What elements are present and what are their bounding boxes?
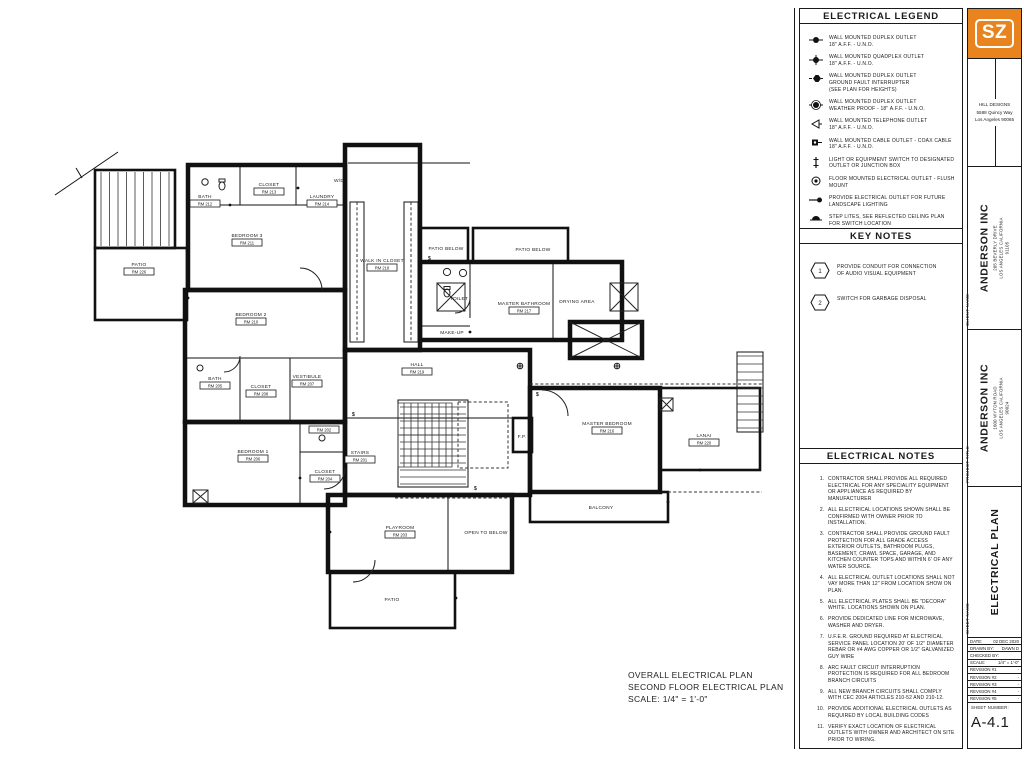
svg-text:BATH: BATH [317, 420, 331, 426]
notes-panel: ELECTRICAL LEGEND WALL MOUNTED DUPLEX OU… [799, 8, 963, 749]
sheet-name-label: SHEET NAME [965, 603, 970, 634]
room-label: LANAI RM 220 [689, 433, 719, 446]
room-label: PATIO [385, 597, 400, 603]
svg-text:RM 207: RM 207 [300, 381, 315, 386]
room-label: PATIO RM 226 [124, 262, 154, 275]
room-label: TOILET [450, 296, 468, 302]
client-cell: ANDERSON INC 205 BEVERLY DRIVE LOS ANGEL… [968, 167, 1021, 330]
legend-item: WALL MOUNTED TELEPHONE OUTLET18" A.F.F. … [803, 118, 959, 131]
svg-text:OPEN TO BELOW: OPEN TO BELOW [464, 530, 508, 536]
electrical-legend-section: ELECTRICAL LEGEND WALL MOUNTED DUPLEX OU… [800, 9, 962, 229]
room-label: HALL RM 219 [402, 362, 432, 375]
svg-text:BATH: BATH [198, 194, 212, 200]
sz-logo: SZ [975, 19, 1014, 48]
plan-caption: OVERALL ELECTRICAL PLAN SECOND FLOOR ELE… [628, 670, 783, 706]
svg-text:RM 218: RM 218 [375, 265, 390, 270]
room-label: CLOSET RM 208 [246, 384, 276, 397]
electrical-notes-title: ELECTRICAL NOTES [800, 449, 962, 464]
svg-text:CLOSET: CLOSET [259, 182, 280, 188]
svg-text:RM 226: RM 226 [132, 269, 147, 274]
note-item: 6.PROVIDE DEDICATED LINE FOR MICROWAVE, … [810, 616, 960, 629]
room-label: BALCONY [589, 505, 614, 511]
svg-text:BATH: BATH [208, 376, 222, 382]
legend-item: WALL MOUNTED DUPLEX OUTLET18" A.F.F. - U… [803, 35, 959, 48]
sheet-name-cell: ELECTRICAL PLAN SHEET NAME [968, 487, 1021, 638]
svg-text:W/D: W/D [334, 178, 344, 184]
sheet-number-label: SHEET NUMBER: [971, 705, 1018, 710]
stair-treads [101, 172, 763, 484]
room-label: MAKE-UP [440, 330, 464, 336]
designer-name: HILL DESIGNS [975, 101, 1014, 108]
note-item: 7.U.F.E.R. GROUND REQUIRED AT ELECTRICAL… [810, 634, 960, 660]
designer-address-1: 5588 Quincy Way [975, 109, 1014, 116]
switch-symbol: $ [352, 412, 355, 418]
plumbing-fixtures [197, 179, 620, 441]
room-label: BEDROOM 2 RM 210 [235, 312, 266, 325]
room-label: PATIO BELOW [428, 246, 463, 252]
room-label: VESTIBULE RM 207 [292, 374, 322, 387]
room-label: BATH RM 212 [190, 194, 220, 207]
svg-text:STAIRS: STAIRS [351, 450, 369, 456]
svg-text:PATIO BELOW: PATIO BELOW [428, 246, 463, 252]
room-label: PLAYROOM RM 203 [385, 525, 415, 538]
svg-text:MASTER BATHROOM: MASTER BATHROOM [498, 301, 550, 307]
svg-text:HALL: HALL [411, 362, 424, 368]
room-label: F.P. [518, 434, 527, 440]
gfi-outlet-icon [803, 73, 829, 93]
project-name: ANDERSON INC [978, 364, 990, 452]
svg-text:MAKE-UP: MAKE-UP [440, 330, 464, 336]
note-item: 11.VERIFY EXACT LOCATION OF ELECTRICAL O… [810, 724, 960, 744]
sheet-name: ELECTRICAL PLAN [989, 509, 1001, 616]
walls-interior [185, 163, 763, 572]
designer-address-2: Los Angeles 90065 [975, 116, 1014, 123]
legend-item: WALL MOUNTED DUPLEX OUTLETGROUND FAULT I… [803, 73, 959, 93]
svg-text:TOILET: TOILET [450, 296, 468, 302]
room-label: W/D [334, 178, 344, 184]
legend-item: WALL MOUNTED CABLE OUTLET - COAX CABLE18… [803, 138, 959, 151]
room-label: BEDROOM 3 RM 211 [231, 233, 262, 246]
svg-text:F.P.: F.P. [518, 434, 527, 440]
room-label: DRYING AREA [559, 299, 595, 305]
room-label: BATH RM 205 [200, 376, 230, 389]
note-item: 2.ALL ELECTRICAL LOCATIONS SHOWN SHALL B… [810, 507, 960, 527]
sheet-border-line [794, 8, 795, 749]
svg-text:CLOSET: CLOSET [251, 384, 272, 390]
svg-text:PATIO: PATIO [132, 262, 147, 268]
svg-text:RM 202: RM 202 [317, 427, 332, 432]
keynote-hexagon-icon: 1 [803, 262, 837, 279]
switch-symbol: $ [536, 392, 539, 398]
note-item: 5.ALL ELECTRICAL PLATES SHALL BE "DECORA… [810, 599, 960, 612]
svg-text:RM 201: RM 201 [353, 457, 368, 462]
client-name: ANDERSON INC [978, 204, 990, 292]
drawing-sheet: $ $ $ $ PATIO RM 226 BEDROOM 3 RM 211 BA… [0, 0, 1024, 758]
room-label: STAIRS RM 201 [345, 450, 375, 463]
room-label: MASTER BEDROOM RM 216 [582, 421, 632, 434]
room-label: CLOSET RM 213 [254, 182, 284, 195]
info-rows: DATE:02 DEC 2020 DRAWN BY:DAWN D CHECKED… [968, 638, 1021, 703]
info-row: CHECKED BY: [968, 652, 1021, 659]
caption-line-2: SECOND FLOOR ELECTRICAL PLAN [628, 682, 783, 694]
svg-text:PATIO BELOW: PATIO BELOW [515, 247, 550, 253]
project-title-label: PROJECT TITLE [965, 446, 970, 483]
svg-text:RM 203: RM 203 [393, 532, 408, 537]
svg-text:RM 214: RM 214 [315, 201, 330, 206]
room-label: OPEN TO BELOW [464, 530, 508, 536]
svg-text:RM 217: RM 217 [517, 308, 532, 313]
electrical-notes-section: ELECTRICAL NOTES 1.CONTRACTOR SHALL PROV… [800, 449, 962, 748]
svg-text:RM 213: RM 213 [262, 189, 277, 194]
legend-item: LIGHT OR EQUIPMENT SWITCH TO DESIGNATEDO… [803, 157, 959, 170]
info-row: REVISION #3- [968, 681, 1021, 688]
svg-text:RM 208: RM 208 [254, 391, 269, 396]
note-item: 1.CONTRACTOR SHALL PROVIDE ALL REQUIRED … [810, 476, 960, 502]
svg-text:DRYING AREA: DRYING AREA [559, 299, 595, 305]
key-note-item: 2 SWITCH FOR GARBAGE DISPOSAL [803, 294, 959, 311]
svg-text:BEDROOM 1: BEDROOM 1 [237, 449, 268, 455]
svg-text:RM 211: RM 211 [240, 240, 255, 245]
legend-item: STEP LITES, SEE REFLECTED CEILING PLANFO… [803, 214, 959, 227]
svg-text:BEDROOM 3: BEDROOM 3 [231, 233, 262, 239]
keynote-hexagon-icon: 2 [803, 294, 837, 311]
svg-text:RM 204: RM 204 [318, 476, 333, 481]
room-label: WALK IN CLOSET RM 218 [360, 258, 404, 271]
key-notes-section: KEY NOTES 1 PROVIDE CONDUIT FOR CONNECTI… [800, 229, 962, 449]
svg-text:RM 206: RM 206 [246, 456, 261, 461]
svg-text:PATIO: PATIO [385, 597, 400, 603]
info-row: DRAWN BY:DAWN D [968, 645, 1021, 652]
info-row: SCALE:1/4" = 1'-0" [968, 660, 1021, 667]
switch-symbol: $ [428, 256, 431, 262]
key-note-item: 1 PROVIDE CONDUIT FOR CONNECTION OF AUDI… [803, 262, 959, 279]
landscape-outlet-icon [803, 195, 829, 208]
break-mark [55, 152, 118, 195]
legend-item: WALL MOUNTED DUPLEX OUTLETWEATHER PROOF … [803, 99, 959, 112]
sheet-number: A-4.1 [971, 714, 1018, 731]
svg-text:RM 219: RM 219 [410, 369, 425, 374]
duplex-outlet-icon [803, 35, 829, 48]
svg-text:BALCONY: BALCONY [589, 505, 614, 511]
caption-line-1: OVERALL ELECTRICAL PLAN [628, 670, 783, 682]
info-row: REVISION #1- [968, 667, 1021, 674]
note-item: 10.PROVIDE ADDITIONAL ELECTRICAL OUTLETS… [810, 706, 960, 719]
svg-text:PLAYROOM: PLAYROOM [386, 525, 415, 531]
room-label: BEDROOM 1 RM 206 [237, 449, 268, 462]
legend-title: ELECTRICAL LEGEND [800, 9, 962, 24]
note-item: 3.CONTRACTOR SHALL PROVIDE GROUND FAULT … [810, 531, 960, 570]
quadplex-outlet-icon [803, 54, 829, 67]
svg-text:RM 220: RM 220 [697, 440, 712, 445]
svg-text:RM 212: RM 212 [198, 201, 213, 206]
note-item: 8.ARC FAULT CIRCUIT INTERRUPTION PROTECT… [810, 665, 960, 685]
legend-item: WALL MOUNTED QUADPLEX OUTLET18" A.F.F. -… [803, 54, 959, 67]
caption-line-3: SCALE: 1/4" = 1'-0" [628, 694, 783, 706]
cable-outlet-icon [803, 138, 829, 151]
room-label: CLOSET RM 204 [310, 469, 340, 482]
designer-cell: HILL DESIGNS 5588 Quincy Way Los Angeles… [968, 59, 1021, 167]
info-row: REVISION #2- [968, 674, 1021, 681]
note-item: 4.ALL ELECTRICAL OUTLET LOCATIONS SHALL … [810, 575, 960, 595]
info-row: DATE:02 DEC 2020 [968, 638, 1021, 645]
svg-text:RM 216: RM 216 [600, 428, 615, 433]
svg-text:LAUNDRY: LAUNDRY [310, 194, 335, 200]
svg-text:1: 1 [818, 269, 822, 275]
svg-text:VESTIBULE: VESTIBULE [293, 374, 322, 380]
project-address: 1600 WYTON ROAD LOS ANGELES CALIFORNIA 9… [992, 377, 1011, 438]
room-label: LAUNDRY RM 214 [307, 194, 337, 207]
room-label: MASTER BATHROOM RM 217 [498, 301, 550, 314]
legend-item: PROVIDE ELECTRICAL OUTLET FOR FUTURELAND… [803, 195, 959, 208]
logo-cell: SZ [968, 9, 1021, 59]
svg-text:2: 2 [818, 301, 822, 307]
svg-text:RM 205: RM 205 [208, 383, 223, 388]
sheet-number-cell: SHEET NUMBER: A-4.1 [968, 703, 1021, 748]
title-block: SZ HILL DESIGNS 5588 Quincy Way Los Ange… [967, 8, 1022, 749]
svg-text:MASTER BEDROOM: MASTER BEDROOM [582, 421, 632, 427]
info-row: REVISION #4- [968, 688, 1021, 695]
info-row: REVISION #5- [968, 696, 1021, 703]
switch-symbol: $ [474, 486, 477, 492]
step-lite-icon [803, 214, 829, 227]
switch-icon [803, 157, 829, 170]
project-cell: ANDERSON INC 1600 WYTON ROAD LOS ANGELES… [968, 330, 1021, 487]
floor-outlet-icon [803, 176, 829, 189]
note-item: 9.ALL NEW BRANCH CIRCUITS SHALL COMPLY W… [810, 689, 960, 702]
weatherproof-outlet-icon [803, 99, 829, 112]
legend-item: FLOOR MOUNTED ELECTRICAL OUTLET - FLUSHM… [803, 176, 959, 189]
room-label: PATIO BELOW [515, 247, 550, 253]
svg-text:CLOSET: CLOSET [315, 469, 336, 475]
key-notes-title: KEY NOTES [800, 229, 962, 244]
svg-text:WALK IN CLOSET: WALK IN CLOSET [360, 258, 404, 264]
svg-text:BEDROOM 2: BEDROOM 2 [235, 312, 266, 318]
svg-text:LANAI: LANAI [696, 433, 711, 439]
floor-plan: $ $ $ $ PATIO RM 226 BEDROOM 3 RM 211 BA… [0, 0, 800, 758]
telephone-outlet-icon [803, 118, 829, 131]
svg-text:RM 210: RM 210 [244, 319, 259, 324]
client-address: 205 BEVERLY DRIVE LOS ANGELES CALIFORNIA… [992, 217, 1011, 278]
client-name-label: CLIENT NAME [965, 294, 970, 326]
